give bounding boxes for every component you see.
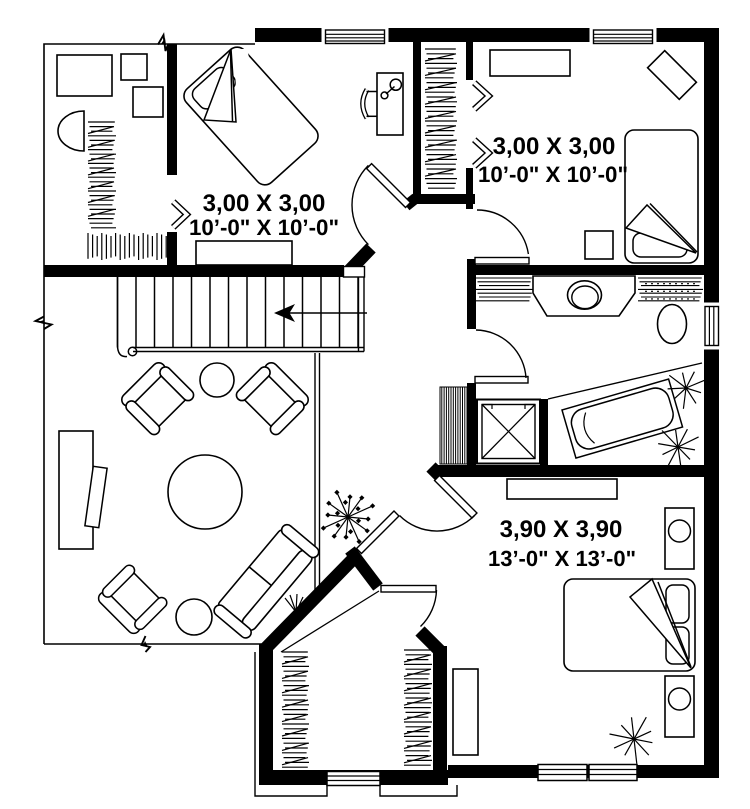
svg-text:10’-0" X 10’-0": 10’-0" X 10’-0" xyxy=(189,215,339,240)
svg-text:3,00 X 3,00: 3,00 X 3,00 xyxy=(203,190,326,217)
svg-text:10’-0" X 10’-0": 10’-0" X 10’-0" xyxy=(478,162,628,187)
svg-text:3,90 X 3,90: 3,90 X 3,90 xyxy=(500,516,623,543)
svg-text:3,00 X 3,00: 3,00 X 3,00 xyxy=(493,133,616,160)
svg-text:13’-0" X 13’-0": 13’-0" X 13’-0" xyxy=(488,546,636,571)
